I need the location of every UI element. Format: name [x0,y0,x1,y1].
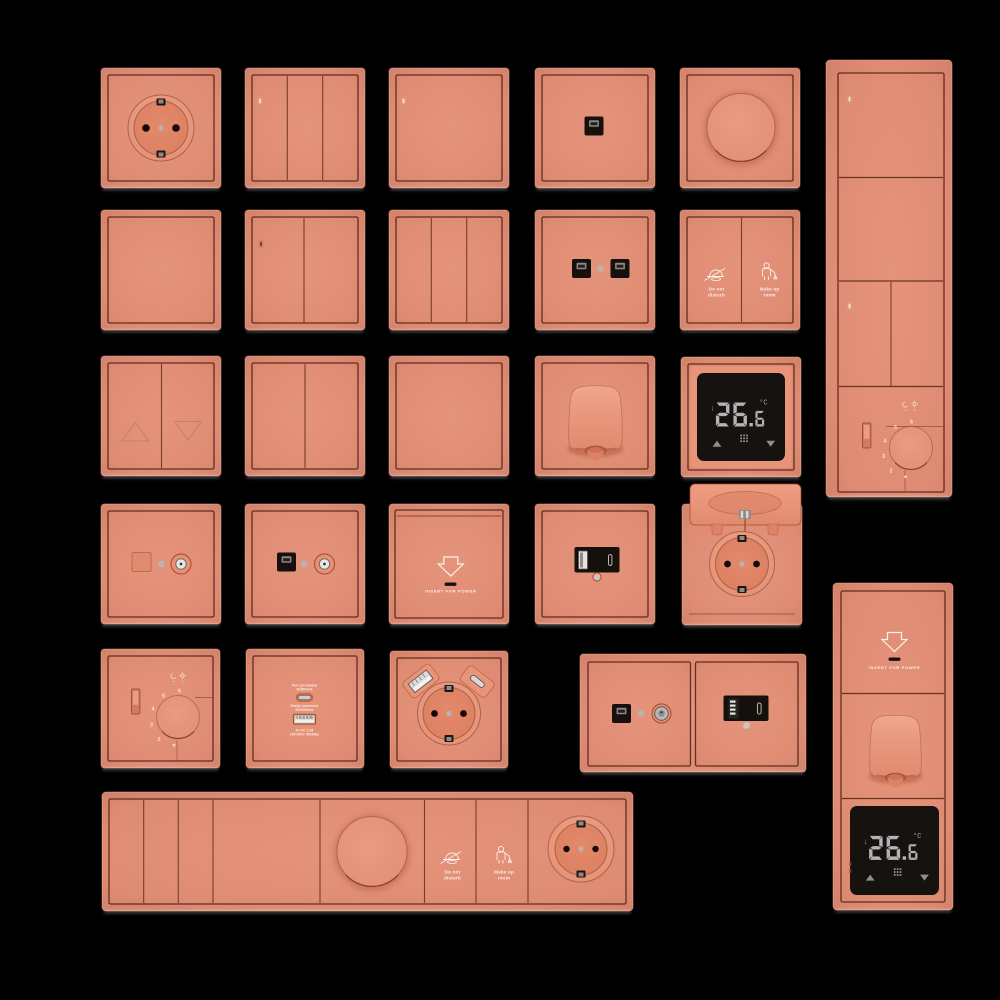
svg-text:6: 6 [178,689,181,695]
svg-text:Do not: Do not [709,287,725,292]
svg-text:✶: ✶ [172,743,176,749]
svg-text:↓: ↓ [710,403,714,412]
svg-text:5: 5 [894,425,897,431]
svg-text:Make up: Make up [760,287,780,292]
svg-text:3: 3 [882,454,885,460]
svg-text:✶: ✶ [903,475,907,481]
svg-text:2: 2 [890,469,893,475]
svg-text:disturb: disturb [708,292,725,297]
svg-text:5V/2000mA: 5V/2000mA [296,708,315,712]
svg-text:100-240V~50/60Hz: 100-240V~50/60Hz [290,733,319,737]
svg-text:4: 4 [884,439,887,445]
svg-text:5V/900mA: 5V/900mA [296,688,313,692]
svg-text:INSERT FOR POWER: INSERT FOR POWER [425,589,477,594]
svg-text:Make up: Make up [494,870,514,875]
svg-text:INSERT FOR POWER: INSERT FOR POWER [869,665,921,670]
svg-text:Do not: Do not [445,870,461,875]
svg-text:°C: °C [759,398,767,407]
svg-text:6: 6 [910,420,913,426]
svg-text:4: 4 [152,707,155,713]
svg-text:3: 3 [150,723,153,729]
svg-text:room: room [498,875,510,880]
svg-text:room: room [763,292,775,297]
svg-text:disturb: disturb [444,875,461,880]
svg-text:2: 2 [158,737,161,743]
svg-text:5: 5 [162,694,165,700]
svg-text:°C: °C [913,832,921,841]
svg-text:↓: ↓ [864,837,868,846]
